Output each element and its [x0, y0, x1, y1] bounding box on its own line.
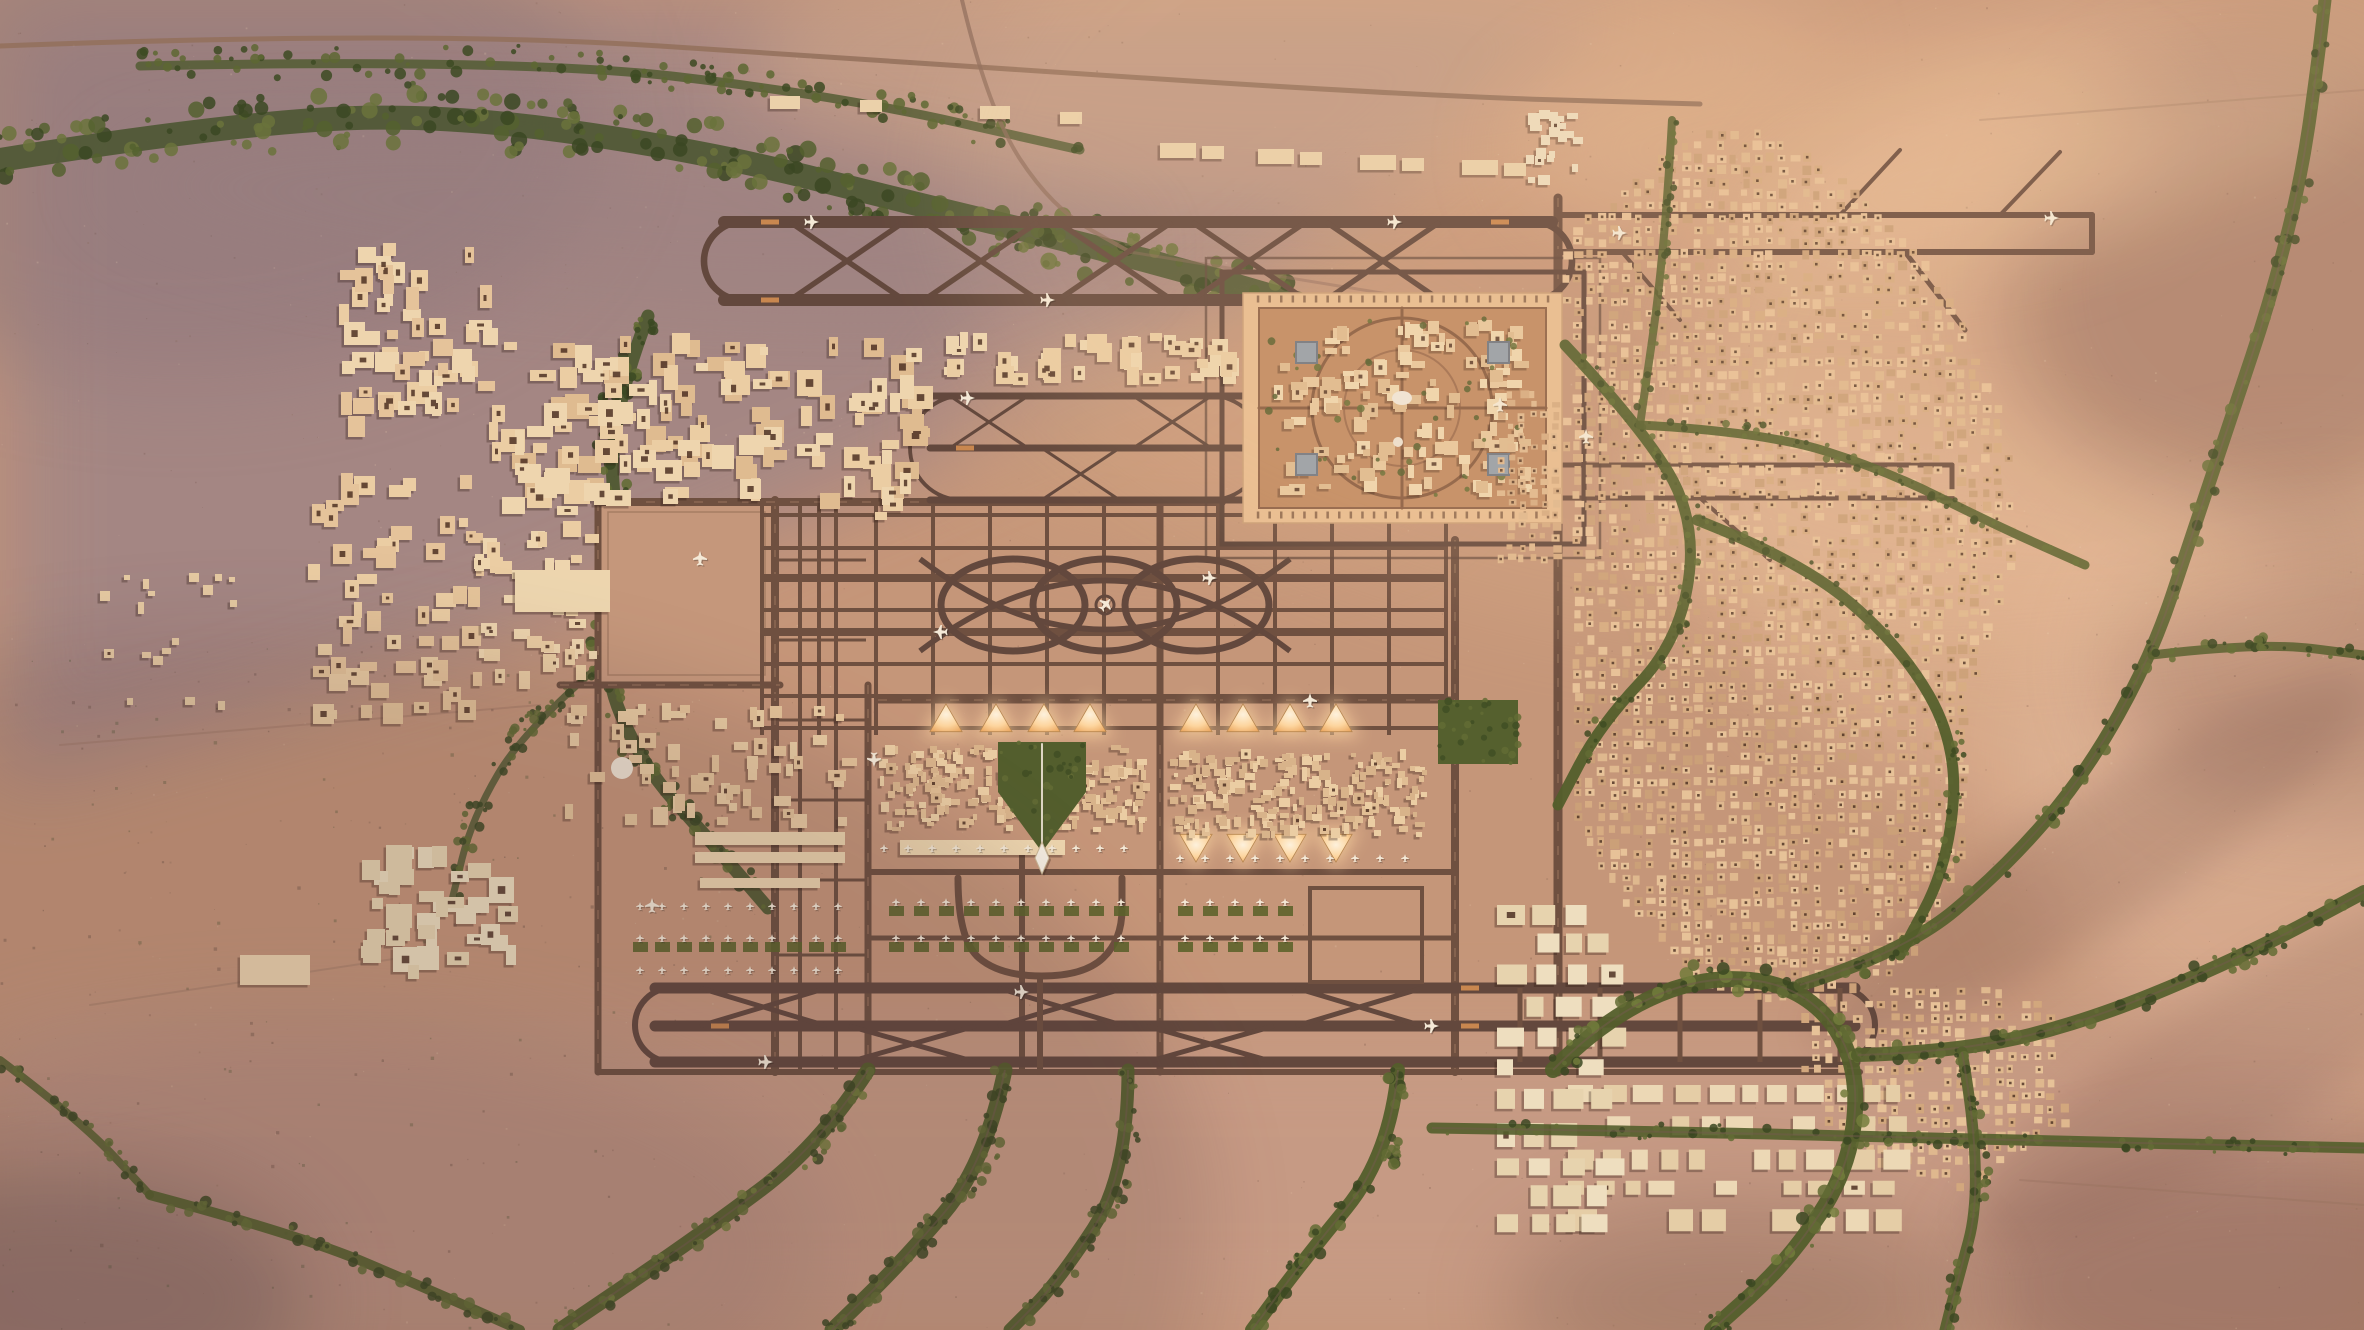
lighting	[0, 0, 2364, 1330]
aerial-photo	[0, 0, 2364, 1330]
aerial-city-render	[0, 0, 2364, 1330]
